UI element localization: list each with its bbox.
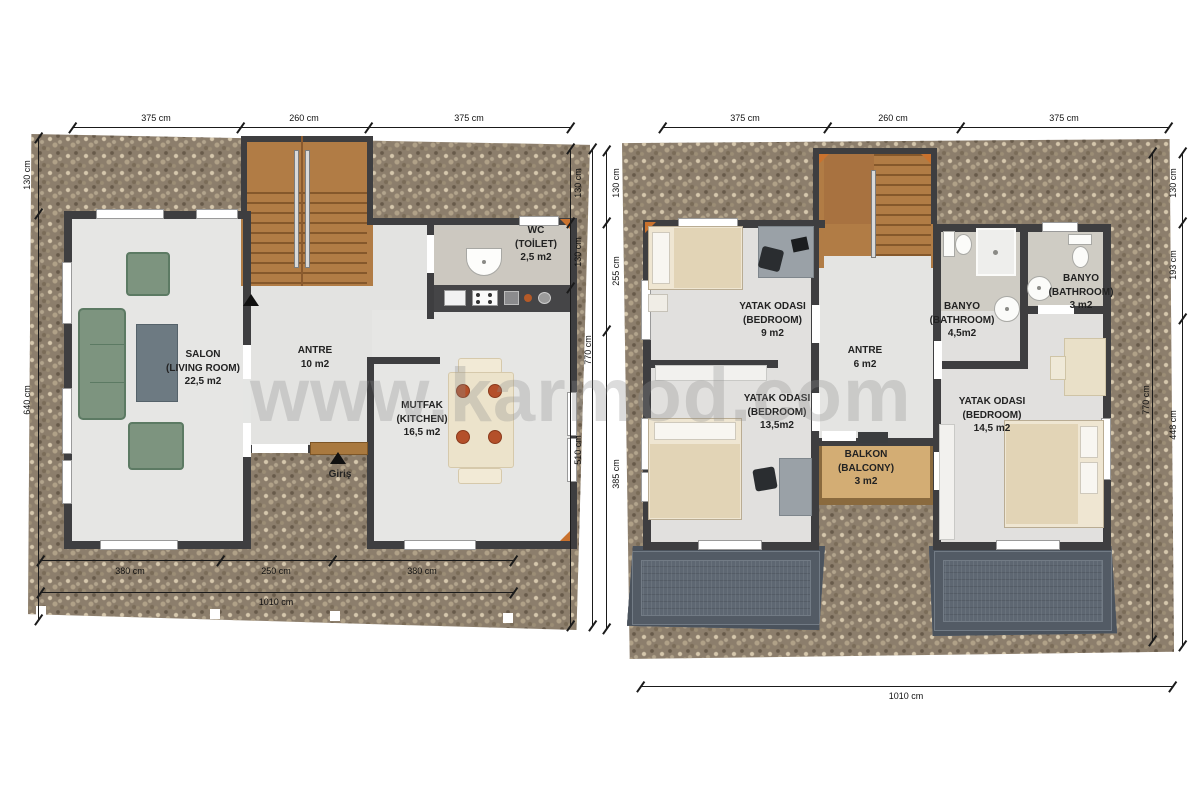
sofa-cushion-line <box>90 344 124 345</box>
lower-roof-panel <box>627 546 825 630</box>
plate <box>488 430 502 444</box>
dimension-label: 770 cm <box>1141 373 1151 427</box>
room-name-en: (BALCONY) <box>811 462 921 476</box>
wall <box>367 357 440 364</box>
counter-sink-icon <box>444 290 466 306</box>
room-area: 22,5 m2 <box>128 375 278 389</box>
room-label-mutfak: MUTFAK (KITCHEN) 16,5 m2 <box>383 399 461 440</box>
dimension-label: 260 cm <box>262 113 346 123</box>
window <box>62 460 72 504</box>
wall <box>1020 224 1028 369</box>
room-name: MUTFAK <box>383 399 461 413</box>
dimension-label: 130 cm <box>573 156 583 210</box>
shower-drain <box>993 250 998 255</box>
wardrobe <box>655 365 767 381</box>
window <box>196 209 238 219</box>
dimension-label: 385 cm <box>611 447 621 501</box>
plate <box>488 384 502 398</box>
room-label-bedroom2: YATAK ODASI (BEDROOM) 13,5m2 <box>704 392 850 433</box>
counter-plant-icon <box>538 292 551 304</box>
entrance-text: Giriş <box>308 468 372 482</box>
roof-corner-mark <box>819 154 829 164</box>
bed-blanket <box>674 228 741 288</box>
room-area: 9 m2 <box>700 327 845 341</box>
footing-marker <box>330 611 340 621</box>
wall <box>367 357 374 549</box>
room-label-antre1: ANTRE 10 m2 <box>275 344 355 371</box>
room-name-en: (BATHROOM) <box>1032 286 1130 300</box>
dimension-label: 1010 cm <box>234 597 318 607</box>
stove-burner-dot <box>476 300 480 304</box>
room-area: 13,5m2 <box>704 419 850 433</box>
footing-marker <box>503 613 513 623</box>
desk-chair <box>752 466 777 491</box>
stairs-treads <box>874 154 931 262</box>
counter-bowl-icon <box>524 294 532 302</box>
stairs-railing <box>871 170 876 258</box>
dining-chair <box>458 468 502 484</box>
stairs-divider <box>301 136 303 286</box>
dimension-line <box>38 137 39 619</box>
dimension-label: 130 cm <box>611 156 621 210</box>
desk-chair <box>1050 356 1066 380</box>
bed-blanket <box>1006 424 1078 524</box>
stairs-landing <box>824 154 874 224</box>
toilet-tank <box>1068 234 1092 245</box>
entrance-arrow <box>330 452 346 464</box>
room-label-salon: SALON (LIVING ROOM) 22,5 m2 <box>128 348 278 389</box>
balcony-railing <box>819 498 933 505</box>
wall <box>931 148 937 224</box>
toilet-bowl <box>955 234 972 255</box>
room-name-en: (KITCHEN) <box>383 413 461 427</box>
counter-appliance-icon <box>504 291 519 305</box>
footing-marker <box>210 609 220 619</box>
room-name-en: (BEDROOM) <box>700 314 845 328</box>
dimension-label: 448 cm <box>1168 398 1178 452</box>
room-name: YATAK ODASI <box>700 300 845 314</box>
wardrobe <box>939 424 955 540</box>
room-name-en: (BEDROOM) <box>704 406 850 420</box>
room-label-balkon: BALKON (BALCONY) 3 m2 <box>811 448 921 489</box>
bed-pillow <box>1080 426 1098 458</box>
armchair <box>128 422 184 470</box>
armchair <box>126 252 170 296</box>
balcony-door-leaf <box>822 431 856 441</box>
desk <box>779 458 812 516</box>
sofa-cushion-line <box>90 382 124 383</box>
dimension-label: 130 cm <box>1168 156 1178 210</box>
room-name: YATAK ODASI <box>704 392 850 406</box>
balcony-doormat <box>858 432 888 443</box>
door-opening <box>778 360 811 368</box>
dimension-line <box>72 127 570 128</box>
room-name: BANYO <box>1032 272 1130 286</box>
room-name: SALON <box>128 348 278 362</box>
room-name: YATAK ODASI <box>919 395 1065 409</box>
dimension-label: 375 cm <box>1022 113 1106 123</box>
room-name-en: (BEDROOM) <box>919 409 1065 423</box>
dimension-label: 130 cm <box>22 148 32 202</box>
stairs-exit-strip <box>824 256 931 268</box>
room-area: 4,5m2 <box>912 327 1012 341</box>
room-area: 6 m2 <box>825 358 905 372</box>
room-name-en: (BATHROOM) <box>912 314 1012 328</box>
room-name: ANTRE <box>825 344 905 358</box>
toilet-bowl <box>1072 246 1089 268</box>
room-name-en: (TOİLET) <box>502 238 570 252</box>
window <box>96 209 164 219</box>
dimension-label: 375 cm <box>114 113 198 123</box>
room-label-bedroom1: YATAK ODASI (BEDROOM) 9 m2 <box>700 300 845 341</box>
stairs-railing <box>305 150 310 268</box>
banyo1-door <box>934 341 942 379</box>
room-area: 10 m2 <box>275 358 355 372</box>
entrance-door-leaf <box>252 444 308 453</box>
room-area: 3 m2 <box>1032 299 1130 313</box>
wall <box>241 136 247 218</box>
room-label-banyo2: BANYO (BATHROOM) 3 m2 <box>1032 272 1130 313</box>
wall <box>933 361 1028 369</box>
wc-door <box>427 235 434 273</box>
toilet <box>943 231 955 257</box>
dimension-line <box>40 592 513 593</box>
room-name: WC <box>502 224 570 238</box>
room-label-wc: WC (TOİLET) 2,5 m2 <box>502 224 570 265</box>
lower-roof-panel <box>929 546 1117 636</box>
sofa <box>78 308 126 420</box>
bed-pillow <box>1080 462 1098 494</box>
dimension-label: 375 cm <box>703 113 787 123</box>
window <box>996 540 1060 550</box>
dimension-label: 640 cm <box>22 373 32 427</box>
stove-burner-dot <box>476 293 480 297</box>
desk <box>1064 338 1106 396</box>
dimension-label: 250 cm <box>234 566 318 576</box>
room-label-banyo1: BANYO (BATHROOM) 4,5m2 <box>912 300 1012 341</box>
room-name: ANTRE <box>275 344 355 358</box>
stairs-direction-arrow <box>243 294 259 306</box>
room-area: 14,5 m2 <box>919 422 1065 436</box>
dimension-line <box>1152 152 1153 640</box>
room-name-en: (LIVING ROOM) <box>128 362 278 376</box>
dimension-line <box>592 148 593 625</box>
dimension-label: 130 cm <box>573 225 583 279</box>
floor-plan-page: Giriş SALON (LIVING ROOM) 22,5 m2 ANTRE … <box>0 0 1200 800</box>
wall <box>367 136 373 224</box>
room-area: 2,5 m2 <box>502 251 570 265</box>
wall <box>241 136 373 142</box>
dimension-label: 260 cm <box>851 113 935 123</box>
stove-burner-dot <box>488 293 492 297</box>
dimension-label: 510 cm <box>573 423 583 477</box>
stairs-railing <box>294 150 299 268</box>
wc-sink-drain <box>482 260 486 264</box>
dimension-line <box>1182 152 1183 645</box>
dimension-label: 255 cm <box>611 244 621 298</box>
bed-pillow <box>652 232 670 284</box>
dimension-label: 380 cm <box>88 566 172 576</box>
window <box>62 388 72 454</box>
nightstand <box>648 294 668 312</box>
dimension-label: 380 cm <box>380 566 464 576</box>
room-name: BALKON <box>811 448 921 462</box>
stove-burner-dot <box>488 300 492 304</box>
window <box>62 262 72 324</box>
room-name: BANYO <box>912 300 1012 314</box>
roof-corner-mark <box>921 154 931 164</box>
bed-blanket <box>650 444 740 518</box>
dimension-label: 375 cm <box>427 113 511 123</box>
window <box>698 540 762 550</box>
dimension-label: 193 cm <box>1168 238 1178 292</box>
entrance-label: Giriş <box>308 468 372 482</box>
plate <box>456 384 470 398</box>
dimension-line <box>662 127 1168 128</box>
room-label-antre2: ANTRE 6 m2 <box>825 344 905 371</box>
room-area: 16,5 m2 <box>383 426 461 440</box>
dimension-line <box>640 686 1172 687</box>
window <box>100 540 178 550</box>
room-label-bedroom3: YATAK ODASI (BEDROOM) 14,5 m2 <box>919 395 1065 436</box>
room-area: 3 m2 <box>811 475 921 489</box>
dimension-label: 1010 cm <box>864 691 948 701</box>
dimension-line <box>40 560 513 561</box>
wall <box>818 148 937 154</box>
window <box>404 540 476 550</box>
window <box>1042 222 1078 232</box>
door-leaf <box>243 423 251 457</box>
dimension-label: 770 cm <box>583 323 593 377</box>
